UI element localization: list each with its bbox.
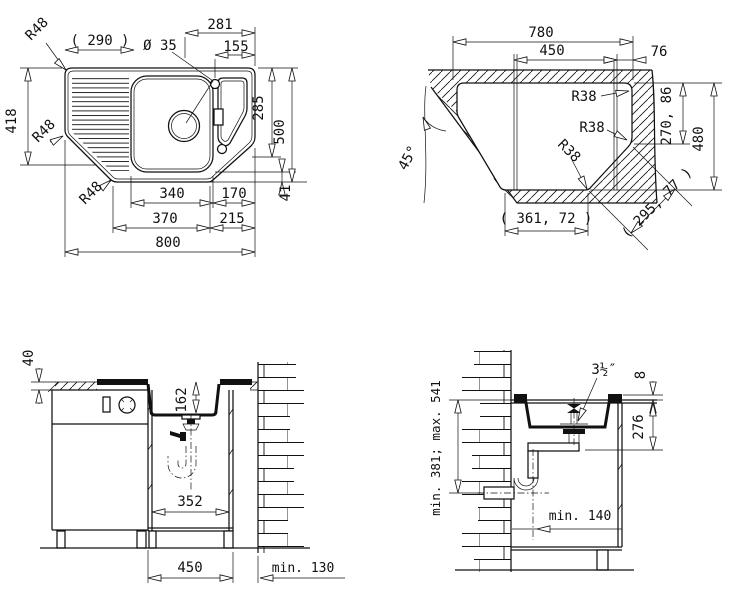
overflow-slot [214,109,223,125]
dishwasher-display [103,397,110,412]
bowl-side-section [525,397,610,427]
front-section-view: 40 162 352 450 min. 130 [21,350,345,583]
tap-hole-2 [218,145,227,154]
counter-side [511,400,657,403]
dim-418: 418 [4,108,20,133]
break-line [424,86,426,203]
dim-361-72: ( 361, 72 ) [500,211,593,227]
front-extension-lines [31,382,258,583]
dim-40: 40 [21,350,37,367]
drainboard-ribs [72,78,129,171]
dim-r38-top: R38 [571,89,596,105]
dim-41: 41 [278,185,294,202]
drain-hole [169,111,200,142]
dim-min381-max541: min. 381; max. 541 [428,380,443,515]
technical-drawing-page: 281 ( 290 ) 155 Ø 35 R48 R48 R48 418 285… [0,0,735,600]
dim-8: 8 [633,371,649,379]
dim-r48-topleft: R48 [23,15,52,44]
dim-290: ( 290 ) [70,33,129,49]
dim-480: 480 [691,126,707,151]
dim-270-86: 270, 86 [659,86,675,145]
plinth-legs [57,531,233,548]
drain-trap [168,415,200,492]
front-arrows [36,369,273,581]
brick-wall-side [462,350,511,572]
dim-215: 215 [219,211,244,227]
dim-45deg: 45° [395,143,421,173]
dim-800: 800 [155,235,180,251]
dim-780: 780 [528,25,553,41]
cutout-view: 780 450 76 R38 R38 R38 45° 270, 86 480 (… [395,25,722,250]
dim-285: 285 [251,95,267,120]
dim-min-140: min. 140 [549,509,612,524]
sink-rim-left [97,379,148,385]
dim-r48-bottom: R48 [77,179,106,208]
worktop-strip-left [55,382,97,390]
sink-rim-right [220,379,252,385]
dim-155: 155 [223,39,248,55]
dim-r38-mid: R38 [579,120,604,136]
dishwasher-knob [119,397,135,413]
siphon [168,446,196,478]
dim-tap-diameter: Ø 35 [143,38,177,54]
dim-500: 500 [272,119,288,144]
tap-dia-leader [172,52,213,123]
dim-min-130: min. 130 [272,561,335,576]
dim-352: 352 [177,494,202,510]
dim-281: 281 [207,17,232,33]
tap-hole [211,80,220,89]
dim-450-cutout: 450 [539,43,564,59]
brick-wall [258,362,310,553]
dishwasher-cabinet [50,390,148,530]
dim-450-front: 450 [177,560,202,576]
dim-370: 370 [152,211,177,227]
dim-170: 170 [221,186,246,202]
sink-technical-drawing: 281 ( 290 ) 155 Ø 35 R48 R48 R48 418 285… [0,0,735,600]
side-section-view: 3½″ 8 276 min. 381; max. 541 min. 140 [428,350,663,572]
dim-276: 276 [631,414,647,439]
dim-162: 162 [174,387,190,412]
dim-76: 76 [651,44,668,60]
dim-drain-size: 3½″ [591,362,616,378]
dim-340: 340 [159,186,184,202]
plan-view: 281 ( 290 ) 155 Ø 35 R48 R48 R48 418 285… [4,15,307,257]
